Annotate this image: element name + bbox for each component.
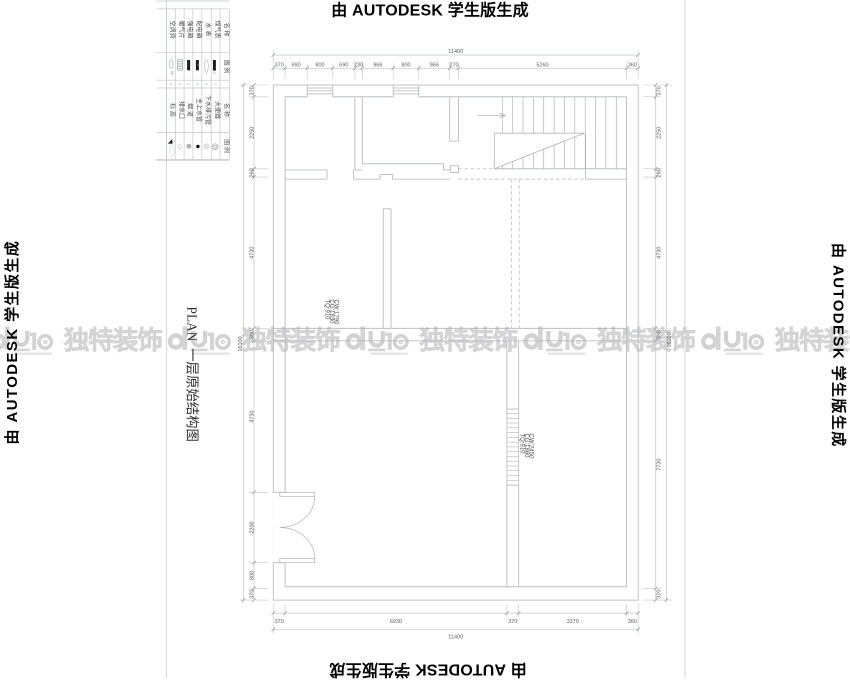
svg-text:2250: 2250 xyxy=(656,127,662,139)
svg-text:360: 360 xyxy=(628,619,637,625)
svg-text:16100: 16100 xyxy=(238,336,244,351)
svg-text:2200: 2200 xyxy=(250,521,256,533)
svg-text:16100: 16100 xyxy=(667,332,673,347)
svg-text:烟 道: 烟 道 xyxy=(186,103,194,117)
svg-text:966: 966 xyxy=(373,62,382,68)
svg-text:4730: 4730 xyxy=(250,410,256,422)
svg-text:370: 370 xyxy=(275,62,284,68)
svg-text:390: 390 xyxy=(656,330,662,339)
svg-text:独特装饰: 独特装饰 xyxy=(64,326,163,355)
svg-text:大便器: 大便器 xyxy=(213,101,221,119)
svg-text:由 AUTODESK 学生版生成: 由 AUTODESK 学生版生成 xyxy=(3,240,21,445)
svg-text:名 称: 名 称 xyxy=(222,103,230,117)
svg-text:由 AUTODESK 学生版生成: 由 AUTODESK 学生版生成 xyxy=(830,243,848,448)
svg-text:强电箱: 强电箱 xyxy=(186,20,194,38)
svg-text:11400: 11400 xyxy=(448,49,463,55)
svg-text:230: 230 xyxy=(354,62,363,68)
svg-text:主上水管: 主上水管 xyxy=(195,98,203,122)
svg-text:图 例: 图 例 xyxy=(222,139,230,153)
svg-text:370: 370 xyxy=(275,619,284,625)
svg-text:下水排污管: 下水排污管 xyxy=(204,95,212,125)
svg-text:3370: 3370 xyxy=(567,619,579,625)
svg-text:370: 370 xyxy=(656,590,662,599)
svg-text:800: 800 xyxy=(401,62,410,68)
svg-text:800: 800 xyxy=(315,62,324,68)
svg-text:370: 370 xyxy=(508,619,517,625)
svg-text:260: 260 xyxy=(250,168,256,177)
svg-text:370: 370 xyxy=(656,86,662,95)
svg-text:65: 65 xyxy=(170,71,174,75)
svg-text:4730: 4730 xyxy=(656,247,662,259)
svg-text:5260: 5260 xyxy=(536,62,548,68)
svg-text:11400: 11400 xyxy=(448,634,463,640)
svg-text:2250: 2250 xyxy=(250,127,256,139)
svg-text:由 AUTODESK 学生版生成: 由 AUTODESK 学生版生成 xyxy=(329,661,527,680)
svg-text:690: 690 xyxy=(292,62,301,68)
svg-text:800: 800 xyxy=(250,571,256,580)
svg-text:排水口: 排水口 xyxy=(177,101,185,119)
svg-text:360: 360 xyxy=(628,62,637,68)
svg-text:空调洞: 空调洞 xyxy=(169,20,177,38)
svg-text:图 例: 图 例 xyxy=(222,60,230,74)
svg-text:PLAN 一层原始结构图: PLAN 一层原始结构图 xyxy=(185,307,200,442)
svg-text:390: 390 xyxy=(250,330,256,339)
svg-text:690: 690 xyxy=(339,62,348,68)
svg-text:名 称: 名 称 xyxy=(222,23,230,37)
svg-text:6930: 6930 xyxy=(390,619,402,625)
svg-text:4730: 4730 xyxy=(250,247,256,259)
svg-text:370: 370 xyxy=(250,590,256,599)
svg-text:TQ:910: TQ:910 xyxy=(323,300,329,321)
svg-text:标 高: 标 高 xyxy=(169,103,177,117)
svg-text:由 AUTODESK 学生版生成: 由 AUTODESK 学生版生成 xyxy=(331,1,529,20)
svg-text:水 表: 水 表 xyxy=(204,23,212,37)
svg-text:暖气片: 暖气片 xyxy=(177,20,185,38)
svg-text:7730: 7730 xyxy=(656,458,662,470)
svg-text:配电箱: 配电箱 xyxy=(195,20,203,38)
svg-text:966: 966 xyxy=(430,62,439,68)
svg-text:270: 270 xyxy=(449,62,458,68)
svg-text:煤气表: 煤气表 xyxy=(213,20,221,38)
svg-text:370: 370 xyxy=(250,86,256,95)
svg-text:260: 260 xyxy=(656,168,662,177)
svg-text:TQ:910: TQ:910 xyxy=(518,434,524,455)
